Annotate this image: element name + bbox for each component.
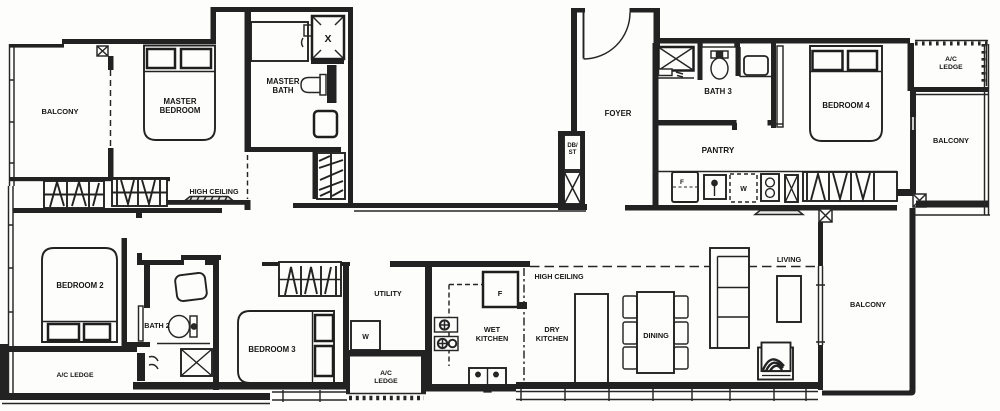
svg-text:A/C: A/C [380,370,392,377]
svg-text:MASTER: MASTER [267,77,300,86]
svg-text:W: W [740,186,747,193]
svg-text:DB/: DB/ [567,143,578,149]
svg-text:DRY: DRY [544,325,559,334]
svg-text:HIGH CEILING: HIGH CEILING [534,272,584,281]
svg-text:WET: WET [484,325,501,334]
svg-text:W: W [362,334,369,341]
svg-text:BATH 3: BATH 3 [704,87,732,96]
svg-text:BEDROOM 3: BEDROOM 3 [248,345,296,354]
svg-text:FOYER: FOYER [605,109,632,118]
svg-text:BATH: BATH [272,86,293,95]
svg-text:A/C LEDGE: A/C LEDGE [56,372,93,379]
svg-text:BATH 2: BATH 2 [144,321,169,330]
svg-text:BALCONY: BALCONY [933,136,969,145]
svg-text:BEDROOM 2: BEDROOM 2 [56,281,104,290]
svg-text:MASTER: MASTER [164,97,197,106]
svg-text:KITCHEN: KITCHEN [476,334,508,343]
svg-text:BEDROOM 4: BEDROOM 4 [822,101,870,110]
svg-text:HIGH CEILING: HIGH CEILING [189,187,239,196]
svg-text:X: X [324,33,331,45]
svg-text:BEDROOM: BEDROOM [160,106,201,115]
svg-text:F: F [680,179,684,186]
svg-text:LEDGE: LEDGE [374,378,398,385]
svg-text:ST: ST [569,150,577,156]
svg-text:BALCONY: BALCONY [41,107,78,116]
svg-text:LEDGE: LEDGE [939,64,963,71]
svg-text:KITCHEN: KITCHEN [536,334,568,343]
svg-text:DINING: DINING [643,331,669,340]
svg-text:BALCONY: BALCONY [850,300,886,309]
svg-text:PANTRY: PANTRY [702,146,735,155]
svg-text:A/C: A/C [945,56,957,63]
svg-text:UTILITY: UTILITY [374,289,402,298]
svg-text:F: F [498,289,503,298]
svg-text:LIVING: LIVING [777,255,802,264]
